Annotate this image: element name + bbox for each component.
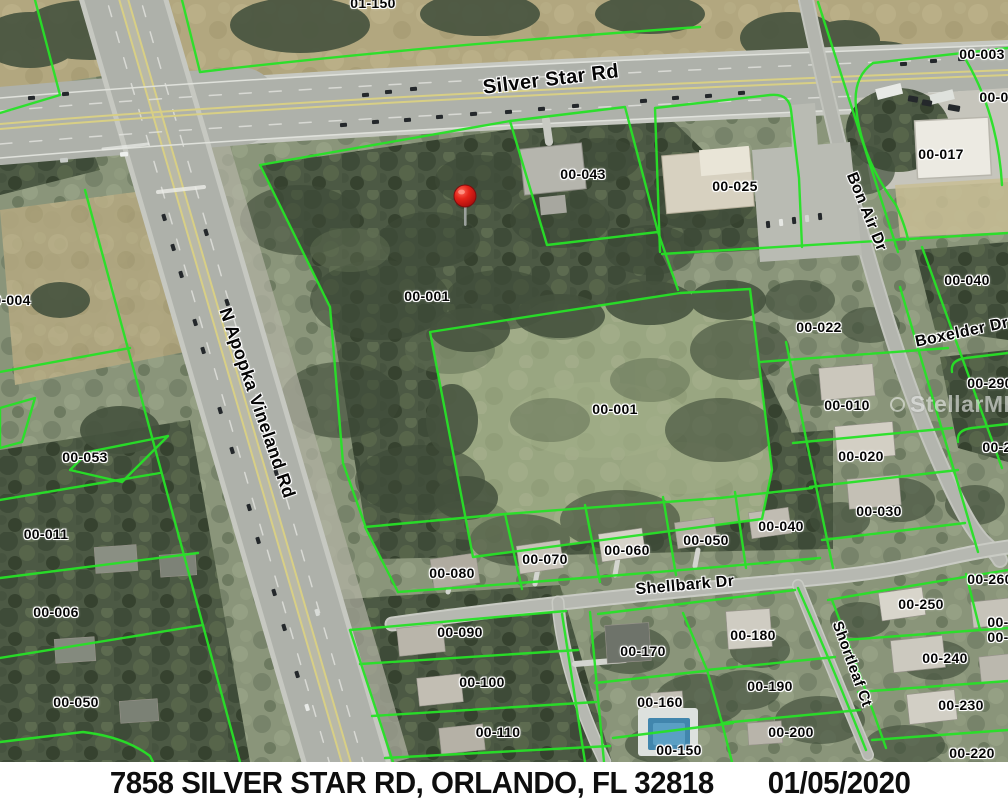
watermark-logo-icon: [890, 397, 905, 412]
pin-icon: [452, 184, 478, 230]
property-location-pin[interactable]: [452, 184, 478, 230]
watermark: StellarMLS: [890, 391, 1008, 418]
map-canvas[interactable]: 01-15000-00300-000-01700-04300-02500-004…: [0, 0, 1008, 762]
listing-map-screenshot: 01-15000-00300-000-01700-04300-02500-004…: [0, 0, 1008, 804]
caption-bar: 7858 SILVER STAR RD, ORLANDO, FL 32818 0…: [0, 762, 1008, 804]
caption-address: 7858 SILVER STAR RD, ORLANDO, FL 32818: [110, 765, 714, 801]
aerial-imagery: [0, 0, 1008, 762]
caption-date: 01/05/2020: [767, 765, 910, 801]
watermark-text: StellarMLS: [910, 391, 1008, 418]
